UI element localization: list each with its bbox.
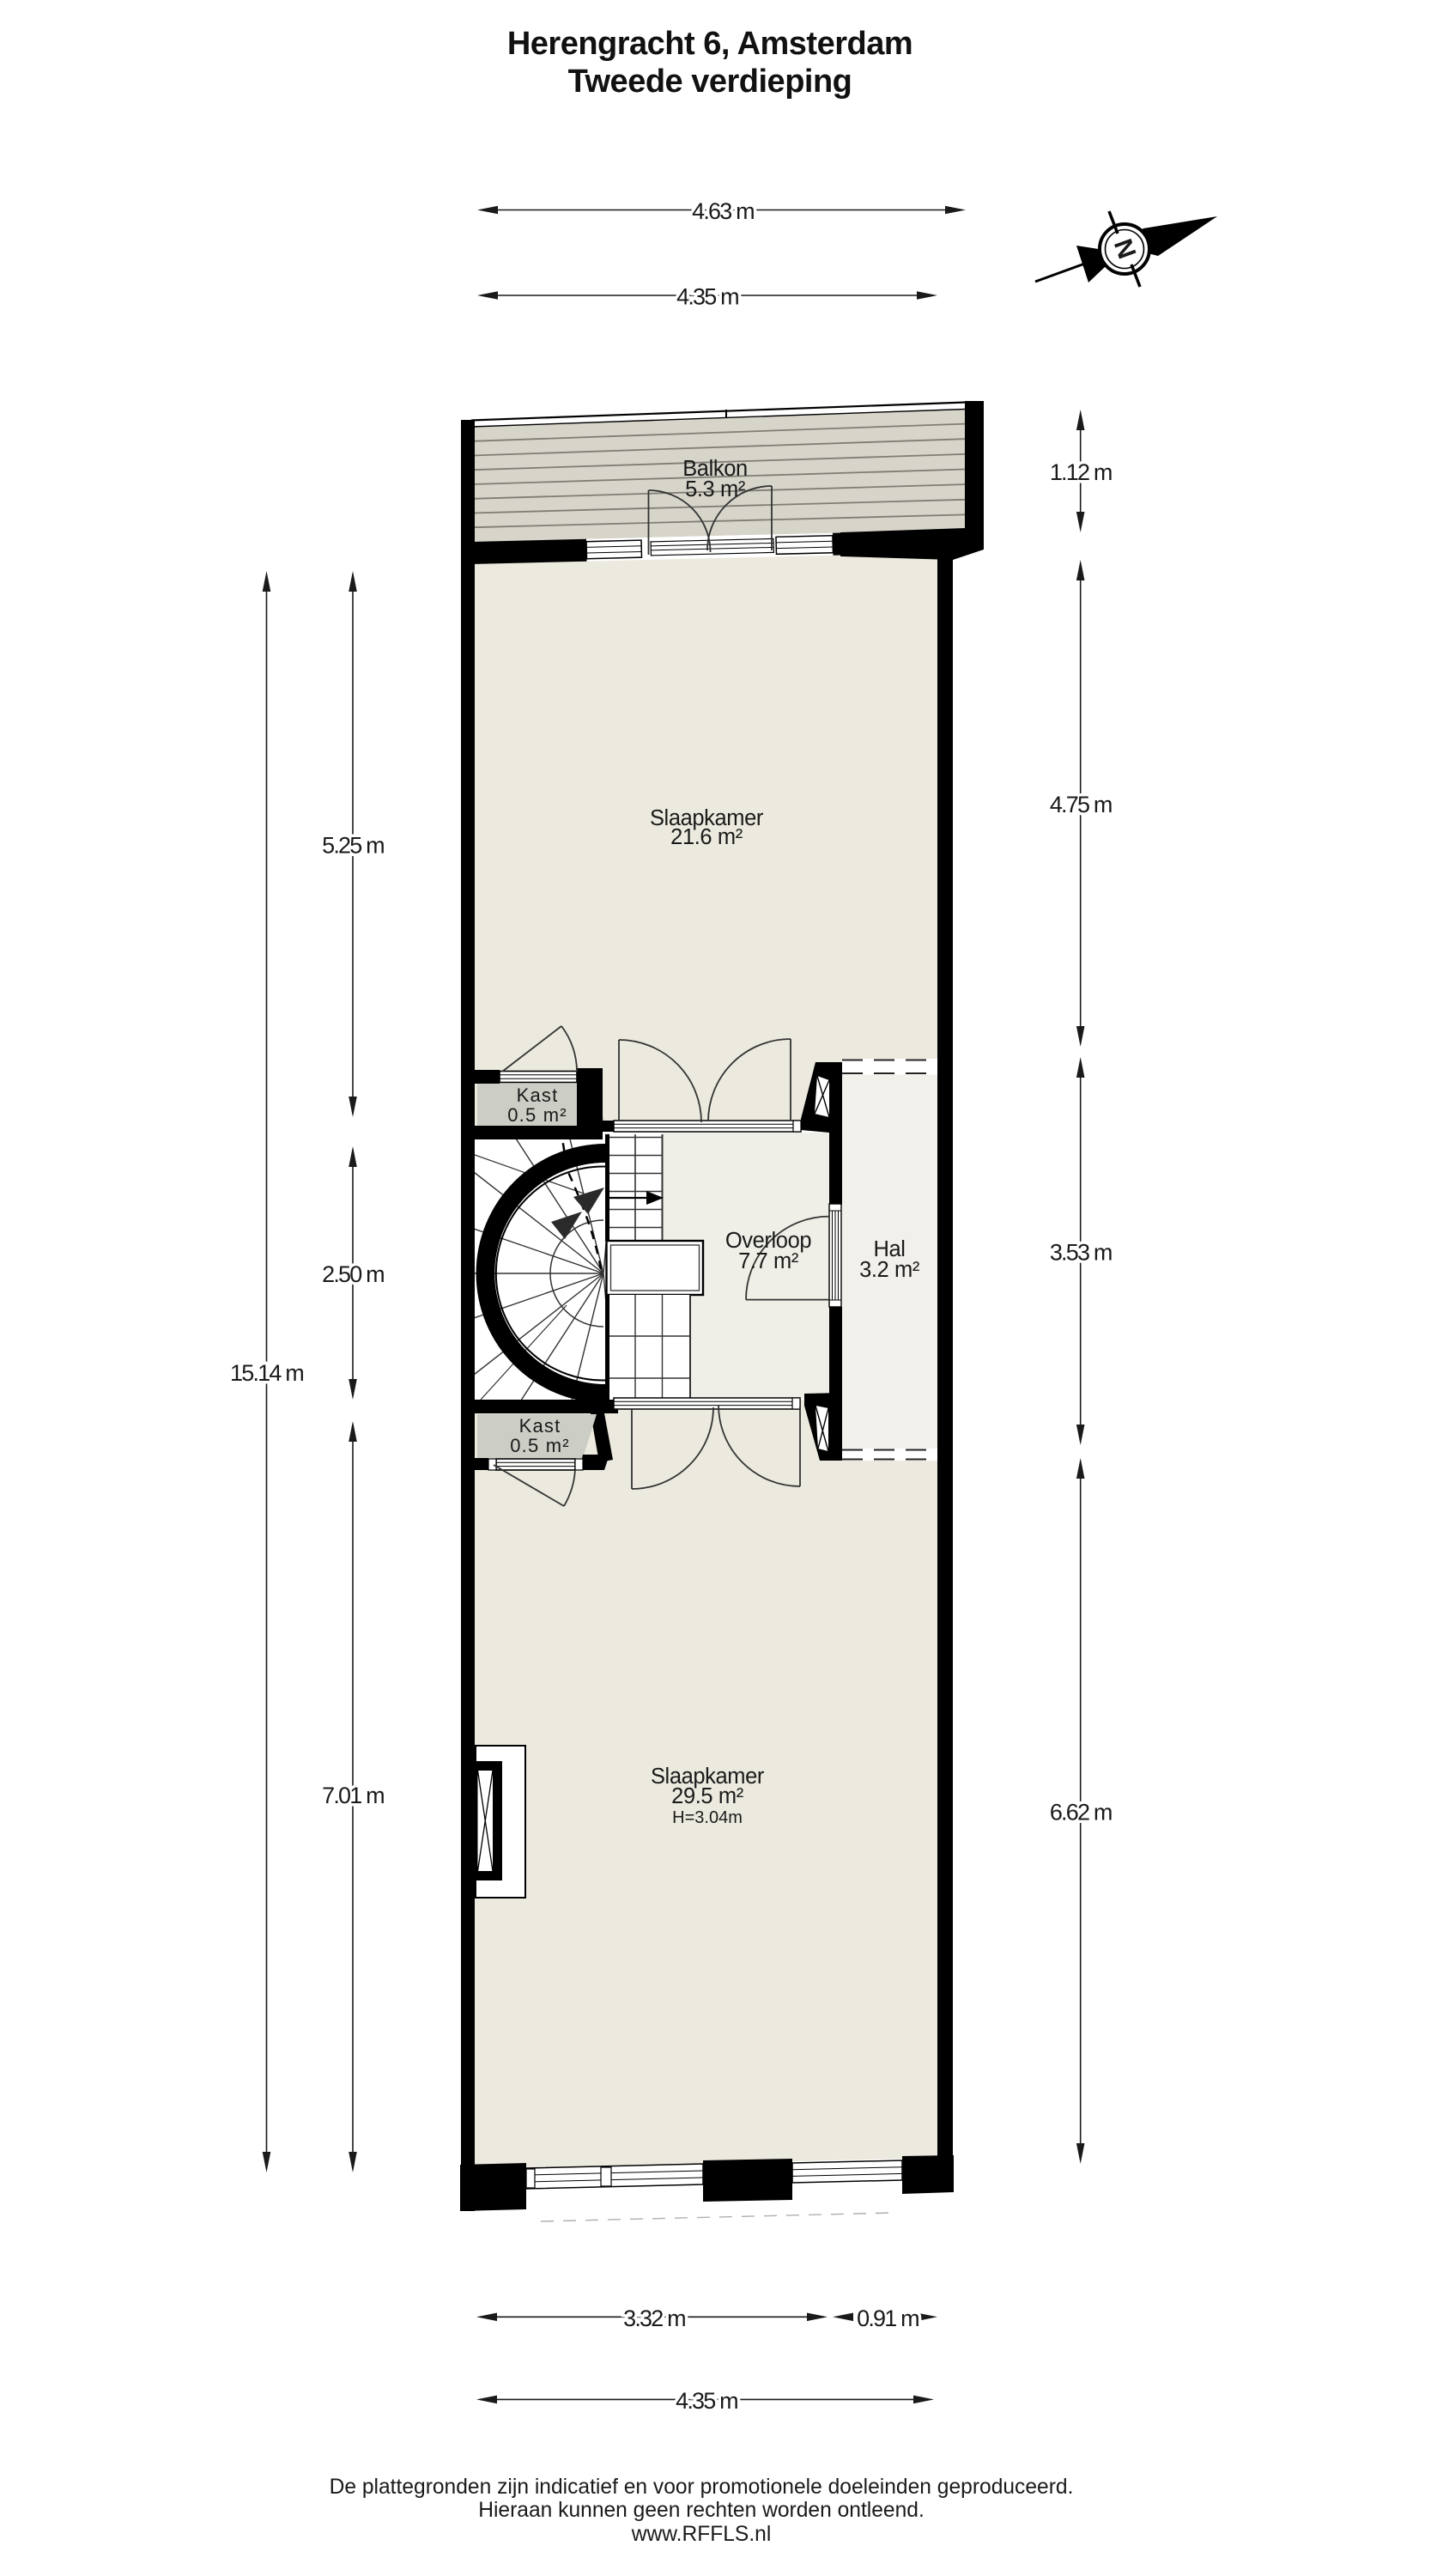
svg-text:3.2 m²: 3.2 m²	[859, 1258, 919, 1282]
svg-text:0.5 m²: 0.5 m²	[510, 1435, 570, 1456]
svg-text:H=3.04m: H=3.04m	[672, 1808, 743, 1827]
svg-text:Kast: Kast	[519, 1415, 561, 1437]
svg-text:3.53 m: 3.53 m	[1050, 1240, 1112, 1266]
svg-text:7.7 m²: 7.7 m²	[738, 1249, 798, 1273]
svg-text:4.75 m: 4.75 m	[1050, 792, 1112, 817]
svg-text:De plattegronden zijn indicati: De plattegronden zijn indicatief en voor…	[330, 2476, 1074, 2499]
svg-text:4.35 m: 4.35 m	[676, 2388, 737, 2414]
svg-text:3.32 m: 3.32 m	[623, 2306, 685, 2331]
svg-text:www.RFFLS.nl: www.RFFLS.nl	[631, 2523, 772, 2546]
svg-text:21.6 m²: 21.6 m²	[670, 825, 743, 849]
svg-text:0.91 m: 0.91 m	[857, 2306, 919, 2331]
svg-text:7.01 m: 7.01 m	[322, 1783, 384, 1808]
svg-text:2.50 m: 2.50 m	[322, 1261, 384, 1287]
svg-text:4.35 m: 4.35 m	[676, 284, 738, 310]
svg-text:4.63 m: 4.63 m	[692, 198, 754, 224]
svg-text:0.5 m²: 0.5 m²	[507, 1104, 567, 1126]
svg-text:1.12 m: 1.12 m	[1050, 459, 1112, 485]
svg-text:29.5 m²: 29.5 m²	[671, 1784, 743, 1808]
svg-text:6.62 m: 6.62 m	[1050, 1800, 1112, 1826]
svg-text:15.14 m: 15.14 m	[230, 1360, 303, 1386]
svg-text:5.25 m: 5.25 m	[322, 833, 384, 859]
svg-text:Herengracht 6, Amsterdam: Herengracht 6, Amsterdam	[507, 26, 912, 62]
svg-text:Hieraan kunnen geen rechten wo: Hieraan kunnen geen rechten worden ontle…	[478, 2499, 925, 2522]
svg-text:Tweede verdieping: Tweede verdieping	[568, 64, 852, 100]
svg-text:Kast: Kast	[517, 1084, 559, 1106]
svg-text:5.3 m²: 5.3 m²	[685, 477, 745, 501]
